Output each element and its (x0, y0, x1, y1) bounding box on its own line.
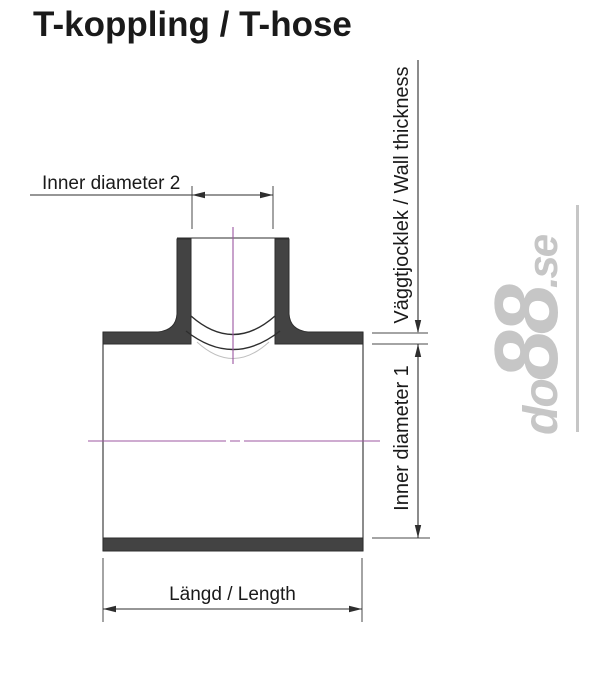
logo-suffix: .se (519, 236, 566, 288)
arrow-right-icon (260, 192, 273, 198)
inner-diameter-2-label: Inner diameter 2 (42, 173, 180, 195)
do88-logo-text: do88.se (476, 236, 579, 435)
length-label: Längd / Length (103, 584, 362, 606)
arrow-right-icon (349, 606, 362, 612)
logo-number: 88 (477, 288, 577, 380)
arrow-up-icon (415, 344, 421, 357)
arrow-left-icon (103, 606, 116, 612)
logo-prefix: do (515, 380, 568, 435)
t-coupling-diagram-page: T-koppling / T-hose (0, 0, 600, 682)
arrow-down-icon (415, 525, 421, 538)
arrow-left-icon (192, 192, 205, 198)
do88-watermark-logo: do88.se (505, 145, 585, 435)
wall-thickness-label: Väggtjocklek / Wall thickness (391, 60, 413, 330)
logo-underline (576, 205, 579, 432)
inner-diameter-1-label: Inner diameter 1 (391, 363, 413, 513)
arrow-down-icon (415, 320, 421, 333)
